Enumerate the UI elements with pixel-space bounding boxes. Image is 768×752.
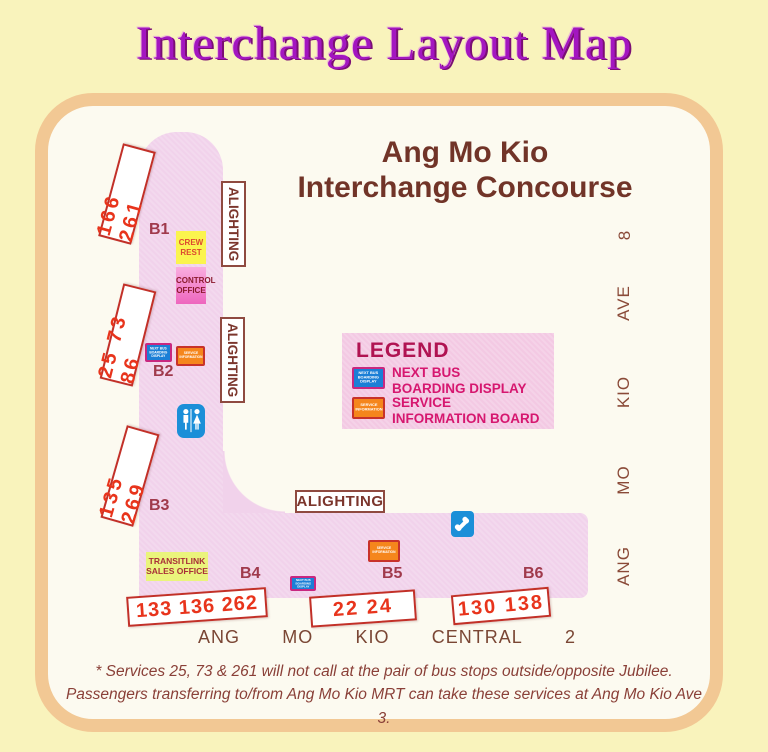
berth-label-b3: B3 [149,497,169,515]
berth-label-b4: B4 [240,565,260,583]
street-ave8-word-ave: AVE [614,268,634,338]
berth-label-b5: B5 [382,565,402,583]
street-ang-mo-kio-central-2: ANG MO KIO CENTRAL 2 [198,627,576,648]
legend-title: LEGEND [356,339,450,363]
page-title: Interchange Layout Map [0,16,768,71]
control-office-room: CONTROL OFFICE [176,267,206,304]
alighting-sign-lower: ALIGHTING [220,317,245,403]
next-bus-boarding-display-icon: NEXT BUS BOARDING DISPLAY [352,367,385,389]
alighting-sign-upper: ALIGHTING [221,181,246,267]
street-ave8-word-8: 8 [615,200,635,270]
next-bus-boarding-display-icon-b2: NEXT BUS BOARDING DISPLAY [145,343,172,362]
legend-label-next-bus: NEXT BUS BOARDING DISPLAY [392,365,527,396]
berth-label-b1: B1 [149,221,169,239]
concourse-area-inner-corner [223,451,285,513]
berth-label-b6: B6 [523,565,543,583]
legend-label-service-info: SERVICE INFORMATION BOARD [392,395,540,426]
transitlink-sales-office: TRANSITLINK SALES OFFICE [146,552,208,581]
street-ave8-word-mo: MO [614,445,634,515]
concourse-heading-line2: Interchange Concourse [290,171,640,206]
next-bus-boarding-display-icon-b4: NEXT BUS BOARDING DISPLAY [290,576,316,591]
concourse-heading-line1: Ang Mo Kio [290,136,640,171]
footnote-line1: * Services 25, 73 & 261 will not call at… [59,660,709,683]
interchange-layout-map-page: Interchange Layout Map Ang Mo Kio Interc… [0,0,768,752]
street-ave8-word-ang: ANG [614,531,634,601]
concourse-heading: Ang Mo Kio Interchange Concourse [290,136,640,205]
service-information-board-icon-b2: SERVICE INFORMATION [176,346,205,366]
alighting-sign-bottom: ALIGHTING [295,490,385,513]
footnote: * Services 25, 73 & 261 will not call at… [59,660,709,730]
service-information-board-icon: SERVICE INFORMATION [352,397,385,419]
service-information-board-icon-b5: SERVICE INFORMATION [368,540,400,562]
street-ave8-word-kio: KIO [614,357,634,427]
berth-label-b2: B2 [153,363,173,381]
toilet-icon [177,404,205,438]
footnote-line2: Passengers transferring to/from Ang Mo K… [59,683,709,730]
crew-rest-room: CREW REST [176,231,206,264]
telephone-icon [451,511,474,537]
